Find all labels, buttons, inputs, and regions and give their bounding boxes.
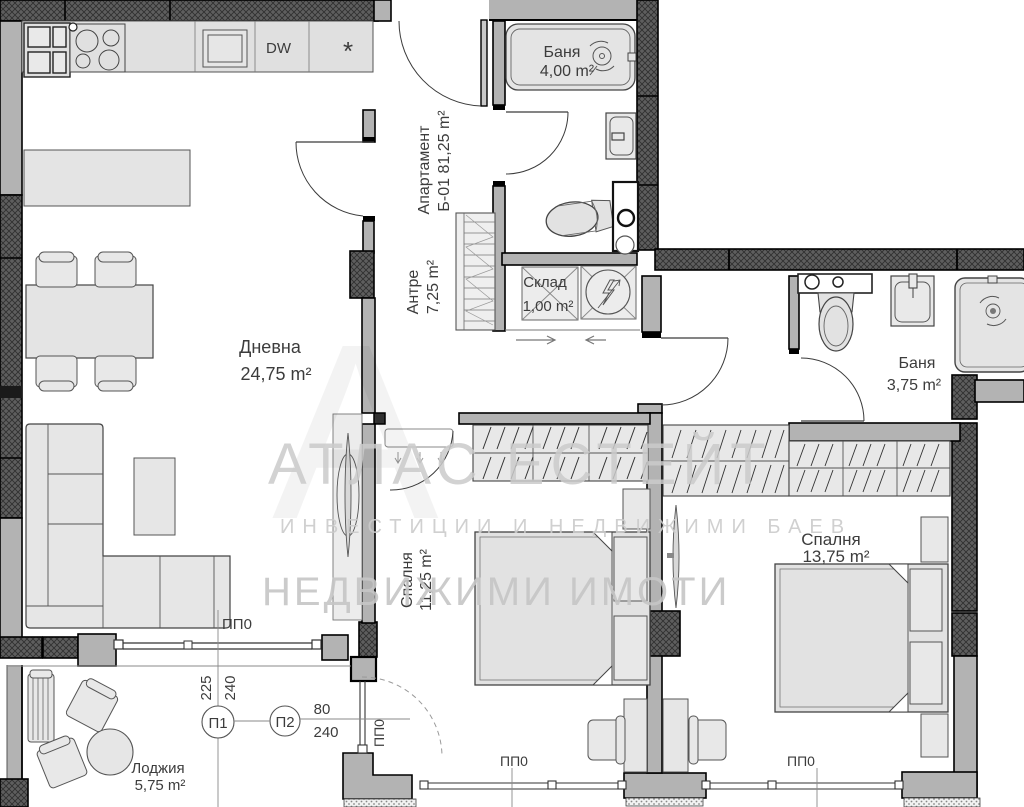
svg-text:240: 240 (313, 724, 338, 741)
svg-text:П1: П1 (208, 715, 227, 732)
svg-text:Лоджия: Лоджия (131, 760, 184, 777)
svg-text:Б-01 81,25 m²: Б-01 81,25 m² (436, 110, 453, 212)
svg-text:DW: DW (266, 40, 292, 57)
svg-text:ПП0: ПП0 (222, 616, 252, 633)
svg-text:ИНВЕСТИЦИИ И НЕДВИЖИМИ БАЕВ: ИНВЕСТИЦИИ И НЕДВИЖИМИ БАЕВ (280, 516, 852, 538)
svg-text:4,00 m²: 4,00 m² (540, 63, 595, 80)
svg-text:Апартамент: Апартамент (416, 125, 433, 215)
svg-text:3,75 m²: 3,75 m² (887, 377, 942, 394)
svg-text:80: 80 (314, 701, 331, 718)
svg-text:13,75 m²: 13,75 m² (802, 547, 869, 566)
svg-text:НЕДВИЖИМИ ИМОТИ: НЕДВИЖИМИ ИМОТИ (262, 570, 730, 614)
svg-text:1,00 m²: 1,00 m² (523, 298, 574, 315)
svg-text:ПП0: ПП0 (371, 719, 387, 747)
svg-text:*: * (343, 36, 353, 66)
svg-text:Склад: Склад (523, 274, 567, 291)
svg-text:АТЛАС ЕСТЕЙТ: АТЛАС ЕСТЕЙТ (268, 432, 772, 497)
svg-text:П2: П2 (275, 714, 294, 731)
svg-text:225: 225 (198, 675, 215, 700)
svg-text:5,75 m²: 5,75 m² (135, 777, 186, 794)
svg-text:ПП0: ПП0 (500, 753, 528, 769)
svg-text:ПП0: ПП0 (787, 753, 815, 769)
svg-text:Баня: Баня (544, 44, 581, 61)
svg-text:Баня: Баня (899, 355, 936, 372)
svg-text:240: 240 (222, 675, 239, 700)
